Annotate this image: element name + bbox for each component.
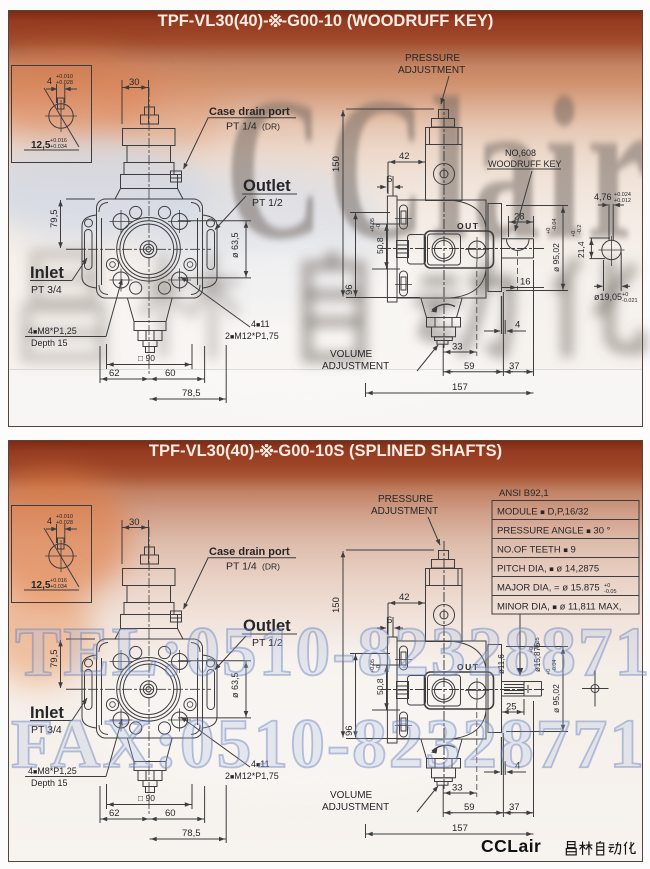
svg-text:12,5: 12,5	[31, 140, 51, 151]
svg-text:MAJOR DIA, = ø 15.875: MAJOR DIA, = ø 15.875	[497, 583, 600, 594]
svg-text:78,5: 78,5	[182, 388, 201, 399]
svg-text:50,8: 50,8	[375, 237, 385, 254]
svg-text:PITCH DIA, ■ ø 14,2875: PITCH DIA, ■ ø 14,2875	[497, 564, 599, 575]
svg-text:96: 96	[344, 284, 355, 295]
svg-text:37: 37	[509, 361, 520, 372]
svg-text:ø 63,5: ø 63,5	[230, 232, 240, 258]
svg-text:Case drain port: Case drain port	[209, 106, 290, 118]
svg-text:2■M12*P1,75: 2■M12*P1,75	[225, 331, 279, 341]
svg-text:ø19,05: ø19,05	[594, 292, 622, 302]
svg-text:PRESSURE: PRESSURE	[405, 53, 460, 64]
svg-text:150: 150	[331, 156, 342, 172]
svg-text:157: 157	[452, 382, 468, 393]
svg-text:4,76: 4,76	[594, 192, 612, 202]
svg-text:-0.021: -0.021	[622, 298, 638, 304]
svg-text:Inlet: Inlet	[30, 264, 64, 282]
svg-text:4: 4	[515, 320, 520, 331]
svg-text:ø 95,02: ø 95,02	[551, 243, 561, 272]
svg-text:79,5: 79,5	[49, 210, 60, 229]
svg-text:60: 60	[165, 368, 176, 379]
svg-text:+0.028: +0.028	[56, 80, 73, 86]
svg-text:6: 6	[387, 174, 392, 185]
svg-text:MINOR DIA, ■ ø 11,811 MAX,: MINOR DIA, ■ ø 11,811 MAX,	[497, 602, 622, 613]
svg-text:PRESSURE ANGLE ■ 30 °: PRESSURE ANGLE ■ 30 °	[497, 526, 611, 537]
svg-text:-0.2: -0.2	[577, 225, 583, 234]
svg-text:30: 30	[129, 77, 140, 88]
svg-text:+0.012: +0.012	[614, 198, 631, 204]
svg-text:VOLUME: VOLUME	[330, 349, 373, 360]
svg-text:OUT: OUT	[457, 221, 479, 231]
svg-text:PT 3/4: PT 3/4	[31, 284, 62, 296]
svg-text:42: 42	[399, 151, 410, 162]
svg-text:ADJUSTMENT: ADJUSTMENT	[322, 361, 389, 372]
svg-text:MODULE ■ D,P,16/32: MODULE ■ D,P,16/32	[497, 507, 589, 518]
svg-text:4: 4	[47, 76, 52, 86]
svg-text:59: 59	[464, 361, 475, 372]
svg-text:Outlet: Outlet	[243, 177, 291, 195]
svg-text:-0.04: -0.04	[552, 218, 558, 231]
svg-text:4■11: 4■11	[251, 319, 270, 329]
svg-text:ADJUSTMENT: ADJUSTMENT	[398, 65, 465, 76]
svg-text:(DR): (DR)	[262, 122, 280, 132]
svg-text:PT 1/2: PT 1/2	[252, 197, 283, 209]
svg-text:16: 16	[520, 277, 531, 288]
svg-text:NO.OF TEETH ■ 9: NO.OF TEETH ■ 9	[497, 545, 576, 556]
svg-text:+0.034: +0.034	[50, 144, 67, 150]
svg-text:-0: -0	[376, 224, 382, 229]
svg-text:33: 33	[452, 342, 463, 353]
svg-text:-0.05: -0.05	[604, 589, 617, 595]
svg-text:ADJUSTMENT: ADJUSTMENT	[371, 506, 438, 517]
svg-text:WOODRUFF KEY: WOODRUFF KEY	[488, 159, 562, 169]
svg-text:NO,608: NO,608	[505, 148, 536, 158]
svg-text:62: 62	[109, 368, 120, 379]
svg-text:ANSI B92,1: ANSI B92,1	[499, 488, 549, 499]
svg-text:PT 1/4: PT 1/4	[226, 121, 257, 133]
svg-text:21,4: 21,4	[576, 241, 586, 258]
svg-text:PRESSURE: PRESSURE	[378, 494, 433, 505]
svg-text:Depth 15: Depth 15	[31, 338, 68, 348]
svg-text:□ 90: □ 90	[138, 353, 155, 363]
